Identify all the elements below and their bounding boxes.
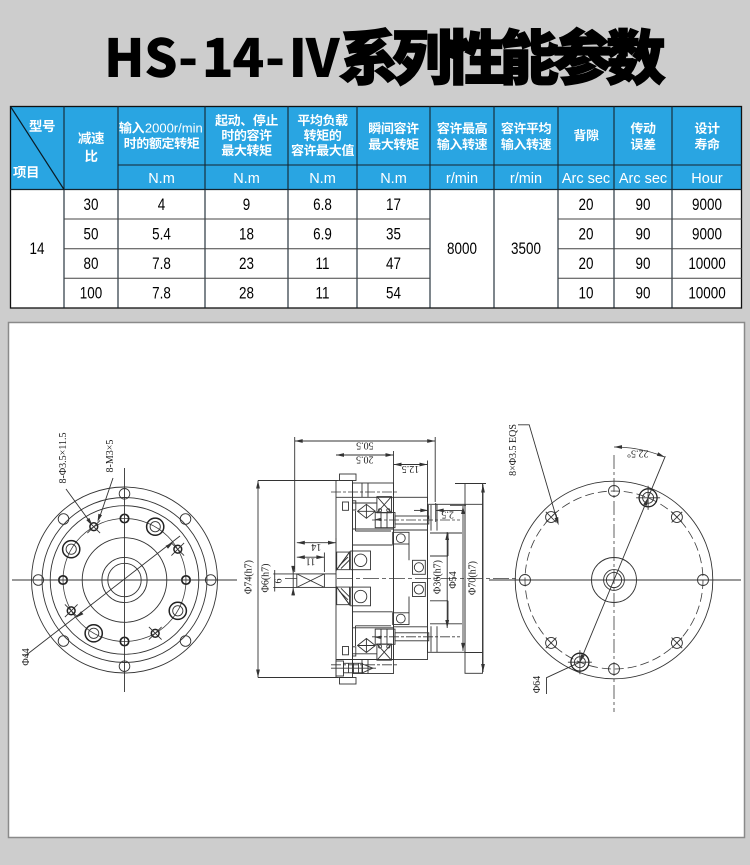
svg-text:11: 11: [316, 255, 330, 274]
svg-text:Φ64: Φ64: [532, 676, 543, 693]
svg-text:Φ54: Φ54: [448, 571, 459, 588]
svg-text:17: 17: [386, 196, 401, 215]
svg-text:50.5: 50.5: [356, 440, 374, 451]
svg-text:11: 11: [316, 284, 330, 303]
svg-text:2.5: 2.5: [441, 509, 454, 520]
svg-text:4: 4: [158, 196, 165, 215]
svg-text:12.5: 12.5: [402, 463, 420, 474]
svg-text:N.m: N.m: [309, 171, 336, 187]
svg-text:22.5°: 22.5°: [627, 448, 649, 459]
svg-text:Φ74(h7): Φ74(h7): [244, 560, 255, 594]
svg-text:Φ70(h7): Φ70(h7): [467, 561, 478, 595]
svg-text:8000: 8000: [447, 240, 477, 259]
svg-text:18: 18: [239, 225, 254, 244]
svg-text:20: 20: [579, 225, 594, 244]
svg-text:3500: 3500: [511, 240, 541, 259]
svg-text:Hour: Hour: [691, 171, 723, 187]
svg-text:r/min: r/min: [510, 171, 542, 187]
svg-text:11: 11: [306, 556, 316, 567]
svg-text:20.5: 20.5: [356, 454, 374, 465]
svg-text:Arc sec: Arc sec: [562, 171, 610, 187]
svg-text:8-M3×5: 8-M3×5: [105, 440, 116, 473]
svg-text:Φ36(h7): Φ36(h7): [433, 560, 444, 594]
svg-text:80: 80: [84, 255, 99, 274]
svg-text:8-Φ3.5×11.5: 8-Φ3.5×11.5: [58, 433, 69, 484]
svg-text:5.4: 5.4: [152, 225, 171, 244]
svg-text:N.m: N.m: [233, 171, 260, 187]
svg-text:50: 50: [84, 225, 99, 244]
svg-text:54: 54: [386, 284, 401, 303]
svg-text:47: 47: [386, 255, 401, 274]
svg-text:N.m: N.m: [380, 171, 407, 187]
svg-text:20: 20: [579, 255, 594, 274]
svg-text:35: 35: [386, 225, 401, 244]
svg-text:14: 14: [311, 541, 321, 552]
svg-text:10000: 10000: [688, 255, 725, 274]
svg-text:9000: 9000: [692, 196, 722, 215]
svg-text:90: 90: [636, 225, 651, 244]
svg-text:90: 90: [636, 196, 651, 215]
svg-text:2000r/min: 2000r/min: [145, 121, 203, 136]
svg-text:9: 9: [243, 196, 250, 215]
svg-text:9000: 9000: [692, 225, 722, 244]
svg-text:90: 90: [636, 284, 651, 303]
svg-text:6.8: 6.8: [313, 196, 332, 215]
svg-text:6: 6: [274, 579, 285, 584]
svg-text:90: 90: [636, 255, 651, 274]
svg-text:N.m: N.m: [148, 171, 175, 187]
svg-text:10: 10: [579, 284, 594, 303]
svg-text:7.8: 7.8: [152, 255, 171, 274]
svg-text:30: 30: [84, 196, 99, 215]
svg-text:7.8: 7.8: [152, 284, 171, 303]
svg-text:28: 28: [239, 284, 254, 303]
svg-text:23: 23: [239, 255, 254, 274]
svg-text:6.9: 6.9: [313, 225, 332, 244]
svg-text:8×Φ3.5 EQS: 8×Φ3.5 EQS: [508, 424, 519, 476]
svg-text:100: 100: [80, 284, 102, 303]
svg-text:Φ6(h7): Φ6(h7): [261, 564, 272, 593]
svg-text:10000: 10000: [688, 284, 725, 303]
svg-text:Φ44: Φ44: [21, 648, 32, 665]
svg-text:20: 20: [579, 196, 594, 215]
svg-text:r/min: r/min: [446, 171, 478, 187]
svg-text:Arc sec: Arc sec: [619, 171, 667, 187]
svg-text:14: 14: [30, 240, 45, 259]
